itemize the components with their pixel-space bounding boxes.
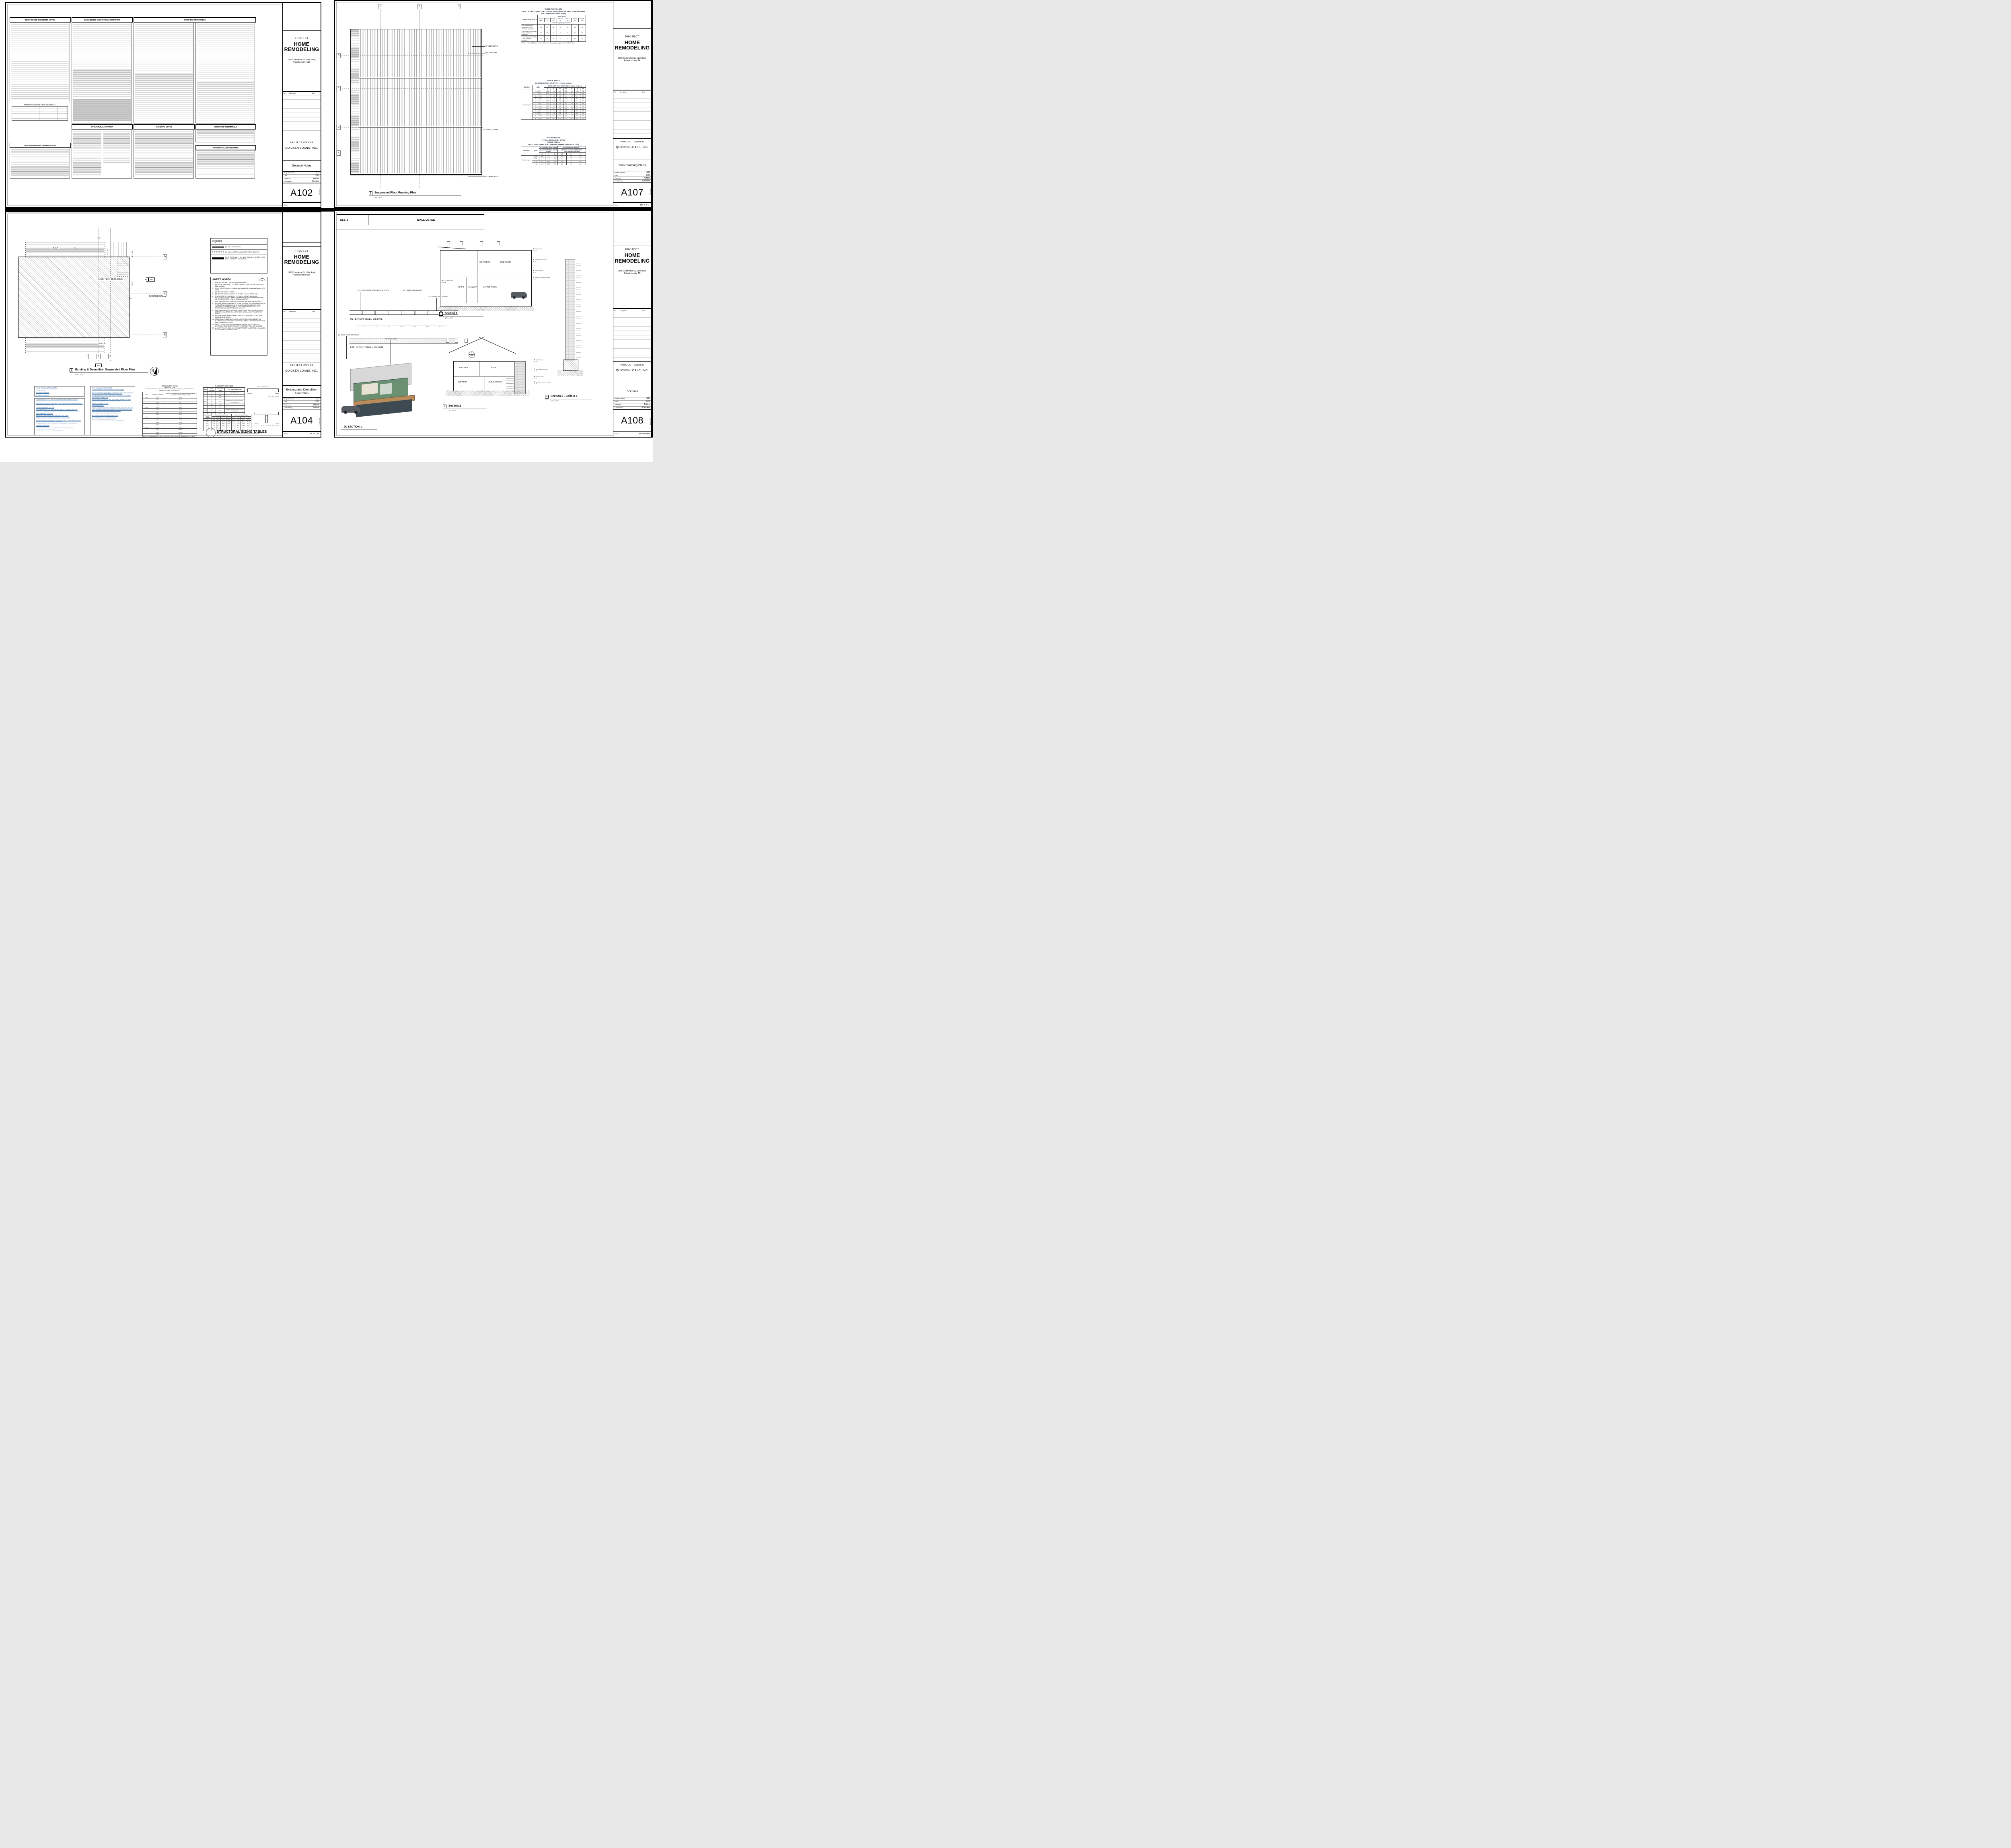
exterior-dim-row: 1' - 4" 1' - 4" 1' - 4" 1' - 4" 1' - 4" … — [357, 325, 447, 327]
title-block-spacer — [283, 31, 321, 34]
notes-header-deferred-label: DEFERRED SUBMITTALS — [214, 126, 237, 128]
plan-scale-label: 1/4" = 1'-0" — [75, 373, 83, 375]
faux-text-block — [103, 131, 130, 163]
title-block-info: Project number003 Date2/22 Drawn byAutho… — [283, 398, 321, 410]
notes-header-site-drainage-label: SITE DRAINAGE RECOMMENDATIONS — [24, 144, 56, 146]
callout1-footing — [563, 360, 578, 371]
project-name: HOME REMODELING — [613, 40, 651, 51]
scale-value: 1/4" = 1'-0" — [309, 433, 319, 435]
date-value: 2/22 — [646, 174, 650, 177]
legend-row-wall-remove: (E) WALL, DOORS AND WINDOWS TO REMOVE — [211, 250, 267, 255]
leader-line — [436, 298, 437, 310]
notes-header-anchors-label: POST INSTALLED ANCHORS — [213, 147, 239, 149]
scale-row: ScaleAs indicated — [613, 431, 651, 436]
title-block-owner: PROJECT OWNER QUICKEN LOANS, INC. — [613, 139, 651, 160]
deck-joist-figure: FIGURE R507.6 TYPICAL DECK JOIST SPANS T… — [521, 137, 586, 165]
leader-line — [360, 292, 360, 310]
project-address: 1506 Commerce St, Little Rock, Pulaski c… — [283, 59, 321, 64]
wood-framing-notes-column-a — [134, 22, 194, 123]
notes-header-concrete-label: REINFORCED CONCRETE NOTES — [25, 19, 56, 21]
sheet-title-label: Existing and Demolition Floor Plan — [283, 388, 321, 395]
floor-truss-notes-box: FLOORS 3 AND 2 SHALL HAVE 22" FLOOR TRUS… — [34, 398, 85, 435]
leader-line — [410, 292, 410, 310]
concrete-notes-column — [10, 22, 70, 102]
grid-bubble-1: 1 — [85, 354, 89, 359]
plan-title: Existing & Demolition Suspended Floor Pl… — [75, 368, 135, 371]
plan-title-rule — [70, 372, 148, 373]
viewport-number: 1 — [440, 313, 442, 315]
room-bath: BATH — [459, 286, 464, 288]
sheet-a107: 1 2 3 D C B A 2 X 6 BLOCKING (2) 2 x 6 B… — [334, 0, 653, 208]
title-block-a104: PROJECT HOME REMODELING 1506 Commerce St… — [282, 212, 321, 437]
plot-stamp: 2:48:23 AM — [319, 418, 321, 425]
grid-bubble-B-label: B — [338, 126, 339, 129]
title-block-logo-area — [283, 3, 321, 31]
deck-top-text: DECK — [52, 247, 58, 249]
section1-wall-right — [531, 250, 532, 306]
date-row: Date2/22 — [283, 401, 321, 403]
owner-label: PROJECT OWNER — [283, 364, 321, 367]
grid-bubble — [480, 241, 483, 245]
title-block-project: PROJECT HOME REMODELING 1506 Commerce St… — [283, 247, 321, 309]
callout-sheet-box: A109 — [148, 278, 155, 282]
legend-symbol-dashed-wall — [212, 251, 224, 253]
project-number-value: 003 — [646, 171, 650, 174]
faux-text-block — [135, 131, 193, 176]
callout1-title: Section 2 - Callout 1 — [551, 395, 578, 398]
dim-1-4: 1' - 4" — [370, 325, 382, 327]
checked-by-row: Checked byChecker — [613, 180, 651, 183]
checked-by-value: Checker — [312, 407, 319, 409]
faux-text-block — [11, 61, 69, 82]
plan-scale: 3/8" = 1'-0" — [374, 196, 382, 198]
section-marker-sheet: A110 — [97, 365, 100, 366]
title-block-info: Project number003 Date2/22 Drawn byAutho… — [613, 397, 651, 410]
plan-title-label: Suspended Floor Framing Plan — [374, 191, 416, 194]
revision-table-rows — [613, 313, 651, 362]
deck-ledger-table-body: ½-inch diameter lag screw with ½-inch ma… — [521, 25, 586, 42]
max-beam-cantilever-label: MAX. 1' - 0" BEAM CANTILEVER — [255, 426, 279, 427]
revision-description-header: Description — [289, 311, 312, 312]
legend-row-new-wall: (N) 2x STUD WALL - ALL NEW WALLS TO RECE… — [211, 255, 267, 261]
north-arrow-n: N — [152, 369, 154, 372]
level-ground: NATURAL GROUND LEVEL — [536, 381, 551, 383]
species-header: SPECIESᵃ — [521, 146, 532, 155]
exterior-wall-detail-label: EXTERIOR WALL DETAIL — [350, 346, 383, 349]
legend-box: legend (E) WALL TO REMAIN (E) WALL, DOOR… — [210, 238, 267, 273]
grid-bubble-C-label: C — [338, 88, 339, 90]
span-col: 14'1" to 16' — [571, 18, 578, 22]
callout1-scale: 3/4" = 1'-0" — [551, 400, 559, 402]
scale-label: Scale — [284, 433, 288, 435]
sheet-number: A108 — [613, 410, 651, 431]
table-r507-9-subtitle: DECK LEDGER CONNECTION TO BAND JOISTᵃ, ᵇ… — [521, 11, 586, 15]
grid-bubble-3-label: 3 — [458, 6, 459, 8]
dim-1-4: 1' - 4" — [421, 325, 434, 327]
section1-wall-left — [440, 250, 440, 306]
owner-label: PROJECT OWNER — [283, 142, 321, 144]
room-bedroom-label: BEDROOM — [500, 261, 511, 263]
timber-board-label-1: 1/2" TIMBER WALL BOARD — [403, 290, 422, 291]
leader-line — [346, 336, 347, 359]
viewport-number: 4 — [546, 396, 547, 398]
annotation-rim-joist-label: 2 x 6 RIM JOIST — [486, 175, 499, 177]
revision-table-header: No. Description Date — [283, 91, 321, 95]
room-hallway-label: HALLWAY — [468, 286, 477, 288]
ceiling-notes-title: NOTES: — [142, 436, 147, 437]
joist-diagram: TOTAL JOIST LENGTH LEDGER BEAM JOIST CAN… — [247, 386, 279, 406]
section1-ground-hatch — [438, 306, 534, 311]
annotation-rim-joist: 2 x 6 RIM JOIST — [486, 175, 499, 177]
ceiling-notes-text: For additional species, grades, and note… — [142, 436, 195, 438]
faux-text-block — [135, 74, 193, 121]
scale-label: Scale — [284, 204, 288, 206]
stud-work-text: 2" x 4" SOFTWOOD STUD WORK @ 16" O.C — [358, 290, 389, 291]
callout-bubble-4-a108: 4 A108 — [469, 352, 475, 358]
section1-roof-slope — [438, 247, 466, 249]
allowable-span-subheader: SPACING OF DECK JOISTS (inches) — [539, 149, 558, 153]
level-ground-elev: 0' - 0" — [534, 383, 537, 384]
section2-ground-hatch — [446, 391, 530, 396]
title-block-logo-area — [613, 211, 651, 241]
drawn-by-label: Drawn by — [284, 178, 290, 179]
grid-bubble-B: B — [337, 125, 341, 130]
legend-symbol-solid-wall — [212, 246, 224, 248]
section2-floor-line — [453, 376, 514, 376]
section2-stair — [506, 377, 514, 391]
species-header: SPECIESᶜ — [521, 85, 533, 90]
grid-bubble-C-label: C — [164, 293, 166, 295]
title-block-owner: PROJECT OWNER QUICKEN LOANS, INC. — [613, 362, 651, 385]
deck-beam-table: SPECIESᶜSIZEᵈDECK JOIST SPAN LESS THAN O… — [521, 85, 586, 120]
grid-bubble-C: C — [337, 86, 341, 91]
section1-drawing: CORRIDOR BEDROOM (N) COVERED DECK BATH H… — [440, 248, 532, 306]
deck-top — [25, 242, 105, 257]
owner-name: QUICKEN LOANS, INC. — [613, 146, 651, 149]
drawn-by-label: Drawn by — [615, 177, 621, 179]
dim-30-6: 30' - 6" — [132, 281, 133, 286]
sheet-notes-box: SHEET NOTES ## 1.REMOVE THIS WALL OPENIN… — [210, 277, 267, 356]
section2-partition — [479, 361, 479, 376]
span-col: 10'1" to 12' — [557, 18, 564, 22]
grid-bubble — [460, 241, 463, 245]
checked-by-value: Checker — [312, 180, 319, 183]
level-suspended: SUSPENDED FLOOR — [536, 368, 548, 370]
date-row: Date2/22 — [283, 175, 321, 177]
section1-title-rule — [439, 316, 483, 317]
room-corridor: CORRIDOR — [479, 261, 491, 263]
level-ground: NATURAL GROUND LEVEL — [535, 277, 550, 278]
sheet-number: A104 — [283, 410, 321, 432]
grid-bubble-D: D — [337, 53, 341, 58]
scale-row: Scale3/8" = 1'-0" — [613, 202, 651, 207]
section-marker-sheet-box: A110 — [95, 364, 102, 367]
checked-by-label: Checked by — [284, 407, 292, 409]
project-number-row: Project number003 — [283, 172, 321, 175]
lap-splice-schedule-grid — [12, 106, 68, 121]
room-kitchen: KITCHEN — [459, 367, 468, 369]
table-r507-6-subtitle: DECK JOIST SPANS FOR COMMON LUMBER SPECI… — [521, 144, 586, 146]
floor-joist-title: FLOOR JOIST SPAN TABLE — [203, 385, 245, 387]
post-label: POST — [276, 423, 279, 425]
section2-levels: ▼ ROOF LEVEL18' - 0" ▼ SUSPENDED FLOOR9'… — [534, 359, 551, 384]
callout1-title-label: Section 2 - Callout 1 — [551, 395, 578, 398]
table-si-note: For SI: 1 inch = 25.4 mm, 1 foot = 304.8… — [521, 42, 586, 44]
revision-date-header: Date — [642, 310, 645, 312]
section1-floor-line — [440, 277, 532, 277]
revision-date-header: Date — [312, 311, 315, 312]
sizing-title-rule — [215, 434, 260, 434]
col-spacing: SPACING (INCHES) — [151, 392, 164, 396]
leader-line — [468, 175, 468, 177]
room-bath-label: BATH — [491, 367, 496, 369]
threed-interior — [362, 383, 378, 395]
faux-text-block — [73, 99, 131, 121]
faux-text-block — [197, 24, 254, 80]
callout-number: 4 — [146, 279, 147, 280]
plan-title-label: Existing & Demolition Suspended Floor Pl… — [75, 368, 135, 371]
legend-label-new-wall: (N) 2x STUD WALL - ALL NEW WALLS TO RECE… — [225, 257, 266, 260]
table-r507-5-subtitle: DECK BEAM SPAN LENGTHSᵃ, ᵇ, ᵍ (feet - in… — [521, 82, 586, 84]
col-spacing: JOIST SPACING — [208, 388, 216, 392]
section1-roof-line — [440, 250, 532, 251]
project-number-label: Project number — [284, 172, 294, 174]
faux-text-block — [197, 152, 254, 176]
ceiling-joist-block: CEILING JOIST SPANS DEAD LOAD = 5psf ***… — [142, 385, 197, 438]
checked-by-row: Checked byChecker — [283, 180, 321, 183]
annotation-deck-joists-label: 2 x 6 DECK JOISTS — [483, 129, 498, 131]
faux-text-block — [73, 70, 131, 98]
sheet-title: Floor Framing Plans — [613, 160, 651, 171]
leader-line — [472, 46, 485, 47]
structural-criteria-box — [72, 129, 132, 179]
deck-hatch — [26, 339, 104, 352]
checked-by-label: Checked by — [615, 407, 623, 409]
grid-bubble — [455, 339, 458, 343]
threed-section: (E) DECK TO BE RETAINED EXISTING ROOF — [338, 359, 423, 423]
post-installed-anchors-box — [195, 150, 255, 179]
title-block-project: PROJECT HOME REMODELING 1506 Commerce St… — [283, 34, 321, 91]
span-col: 12'1" to 14' — [564, 18, 571, 22]
project-address: 1506 Commerce St, Little Rock, Pulaski c… — [613, 270, 651, 275]
col-supported: SUPPORTED JOIST LENGTH — [204, 414, 212, 419]
revision-description-header: Description — [620, 91, 642, 93]
joist-bar — [247, 389, 279, 392]
notes-header-general-label: GENERAL NOTES — [156, 126, 172, 128]
dim-6-6-text: 6' - 6 1/2" — [107, 249, 109, 255]
wall-detail-label: WALL DETAIL — [368, 215, 484, 225]
owner-label: PROJECT OWNER — [613, 141, 651, 143]
level-roof-elev: 18' - 0" — [533, 250, 537, 251]
project-number-value: 003 — [646, 397, 650, 400]
revision-no-header: No. — [283, 311, 289, 312]
notes-header-trusses-label: ENGINEERED WOOD TRUSSES/RAFTER — [84, 19, 120, 21]
scale-row: Scale — [283, 203, 321, 207]
ceiling-joist-body: 2 x 412.012-516.011-319.210-724.09-102 x… — [143, 396, 197, 436]
beam-bar — [255, 412, 279, 415]
level-suspended: SUSPENDED FLOOR — [535, 259, 547, 261]
leader-line — [476, 130, 483, 130]
viewport-number: 1 — [71, 369, 72, 372]
scale-row: Scale1/4" = 1'-0" — [283, 432, 321, 436]
date-label: Date — [615, 401, 618, 403]
legend-symbol-new-wall — [212, 257, 224, 259]
title-block-logo-area — [283, 212, 321, 243]
sizing-tables-viewport — [206, 428, 216, 438]
drawn-by-row: Drawn byAuthor — [283, 404, 321, 407]
callout-sheet: A109 — [150, 279, 153, 280]
grid-bubble-B-label: B — [164, 334, 166, 336]
project-number-row: Project number003 — [613, 171, 651, 174]
annotation-blocking: 2 X 6 BLOCKING — [485, 45, 498, 47]
project-number-row: Project number003 — [613, 397, 651, 400]
rim-joist-line — [351, 174, 481, 175]
date-row: Date2/22 — [613, 174, 651, 177]
title-block-owner: PROJECT OWNER QUICKEN LOANS, INC. — [283, 362, 321, 386]
car-wheel — [354, 411, 358, 414]
ceiling-joist-table: SIZE SPACING (INCHES) VISUALLY GRADED #2… — [142, 392, 197, 436]
level-ground-elev: 0' - 0" — [533, 278, 536, 280]
drawn-by-row: Drawn byAuthor — [613, 403, 651, 406]
col-max-cant: MAX. JOIST CANTILEVER — [224, 388, 245, 392]
level-first-elev: 0' - 6" — [534, 378, 537, 379]
project-number-value: 003 — [316, 398, 319, 400]
grid-bubble-1: 1 — [378, 4, 382, 9]
grid-bubble-1-label: 1 — [379, 6, 380, 8]
interior-wall-detail-label: INTERIOR WALL DETAIL — [350, 318, 382, 321]
grid-bubble-D-label: D — [338, 55, 339, 57]
deck-top-label: DECK — [51, 247, 59, 249]
leader-line — [468, 177, 486, 177]
grid-bubble-D: D — [163, 254, 167, 259]
section2-title-label: Section 2 — [448, 405, 461, 407]
detail-header-band: DET. 3 WALL DETAIL — [337, 214, 484, 230]
existing-roof-label: EXISTING ROOF — [385, 338, 397, 340]
grid-bubble-3: 3 — [108, 354, 112, 359]
sizing-tables-scale: N.T.S. — [217, 434, 221, 436]
table-r507-5-title: TABLE R507.5 — [521, 80, 586, 82]
size-header: SIZEᵈ — [533, 85, 544, 90]
date-label: Date — [284, 175, 287, 177]
annotation-deck-joists: 2 x 6 DECK JOISTS — [483, 129, 498, 131]
connection-details-header: CONNECTION DETAILS — [521, 15, 538, 25]
project-number-label: Project number — [615, 172, 625, 173]
level-first-elev: 0' - 6" — [533, 271, 536, 273]
general-notes-box — [134, 129, 194, 179]
size-header: SIZE — [532, 146, 539, 155]
sheet-a104: DECK DN EXISTING BUILDING DECK EXISTING … — [5, 212, 321, 438]
deck-bottom-label: DECK — [99, 343, 107, 345]
date-value: 2/22 — [315, 401, 319, 403]
faux-text-block — [73, 24, 131, 68]
interior-wall-detail-text: INTERIOR WALL DETAIL — [350, 318, 382, 321]
room-covered-deck-label: (N) COVERED DECK — [442, 280, 453, 284]
deck-joists-hatch — [359, 29, 481, 173]
revision-description-header: Description — [289, 93, 312, 94]
title-block-a107: PROJECT HOME REMODELING 1506 Commerce St… — [613, 1, 651, 207]
viewport-number-box: 2 — [443, 405, 446, 408]
north-arrow: N — [150, 367, 159, 376]
revision-table-rows — [613, 94, 651, 138]
plot-stamp: 2:48:23 AM — [650, 418, 651, 425]
span-col: 16'1" to 18' — [578, 18, 586, 22]
grid-bubble-C: C — [163, 291, 167, 296]
lap-splice-schedule: REINFORCED CONCRETE LAP SPLICE SCHEDULE — [12, 104, 68, 121]
section1-title: Section 1 — [445, 312, 457, 315]
project-number-row: Project number003 — [283, 398, 321, 401]
date-row: Date2/22 — [613, 401, 651, 403]
checked-by-label: Checked by — [284, 181, 292, 182]
grid-bubble — [465, 339, 468, 343]
project-name: HOME REMODELING — [283, 42, 321, 53]
deck-beam-table-body: Southern pine1 — 2 × 64-114-03-73-33-02-… — [521, 90, 586, 119]
sheet-title: General Notes — [283, 161, 321, 172]
title-block-spacer — [283, 243, 321, 247]
exterior-wall-strip — [350, 339, 458, 343]
det-3-label: DET. 3 — [337, 215, 368, 225]
revision-description-header: Description — [620, 310, 642, 312]
roof-truss-notes-box: ROOF FRAMING / TRUSS NOTES: ALL TRUSSES … — [90, 386, 135, 435]
plan-title-rule — [369, 195, 461, 196]
revision-no-header: No. — [613, 310, 620, 312]
section2-drawing: KITCHEN BATH WETBAR LIVING ROOM 8' - 4" … — [444, 343, 532, 398]
framing-plan — [350, 29, 482, 175]
title-block-a108: PROJECT HOME REMODELING 1506 Commerce St… — [613, 211, 651, 437]
span-col: 6'1" to 8' — [544, 18, 550, 22]
revision-date-header: Date — [312, 93, 315, 94]
viewport-number: 2 — [444, 405, 445, 408]
sheet-number: A107 — [613, 183, 651, 203]
sizing-tables-title-label: STRUCTURAL SIZING TABLES — [217, 430, 267, 434]
sheet-notes-header: SHEET NOTES ## — [211, 277, 267, 282]
scale-value: As indicated — [639, 433, 650, 435]
callout1-scale-label: 3/4" = 1'-0" — [551, 400, 559, 402]
owner-name: QUICKEN LOANS, INC. — [613, 369, 651, 372]
sheet-title-label: Sections — [627, 390, 638, 393]
section2-scale-label: 1/4" = 1'-0" — [448, 409, 456, 411]
trusses-notes-column — [72, 22, 132, 123]
plan-title: Suspended Floor Framing Plan — [374, 191, 416, 194]
revision-table-rows — [283, 314, 321, 362]
section1-partition — [467, 278, 467, 303]
revision-date-header: Date — [642, 91, 645, 93]
leader-line-dashed — [468, 53, 485, 53]
sheet-notes-title: SHEET NOTES — [212, 278, 231, 281]
room-kitchen-label: KITCHEN — [459, 367, 468, 369]
sizing-tables-title: STRUCTURAL SIZING TABLES — [217, 430, 267, 434]
revision-table-header: No. Description Date — [613, 308, 651, 313]
beam-label-2: BEAM — [255, 423, 258, 425]
existing-building-text: EXISTING BUILDING — [99, 278, 123, 281]
site-drainage-box — [10, 147, 70, 179]
drawing-set-canvas: REINFORCED CONCRETE NOTES ENGINEERED WOO… — [0, 0, 653, 462]
section1-partition — [477, 278, 477, 303]
sheet-number-label: A102 — [290, 187, 313, 198]
room-bath-label: BATH — [459, 286, 464, 288]
leader-line — [391, 340, 391, 365]
dim-1-4: 1' - 4" — [395, 325, 408, 327]
faux-text-block — [73, 131, 101, 176]
roof-truss-notes-list: ALL TRUSSES SHALL CARRY MANUFACTURERS ST… — [92, 389, 134, 421]
section2-brick-shaft — [514, 361, 526, 394]
section1-partition — [477, 250, 477, 277]
title-block-a102: PROJECT HOME REMODELING 1506 Commerce St… — [282, 3, 321, 207]
span-col: 6' and less — [537, 18, 544, 22]
section1-partition — [457, 278, 457, 303]
deck-retained-label: (E) DECK TO BE RETAINED — [338, 334, 359, 336]
checked-by-row: Checked byChecker — [283, 407, 321, 409]
room-wetbar-label: WETBAR — [458, 381, 467, 383]
